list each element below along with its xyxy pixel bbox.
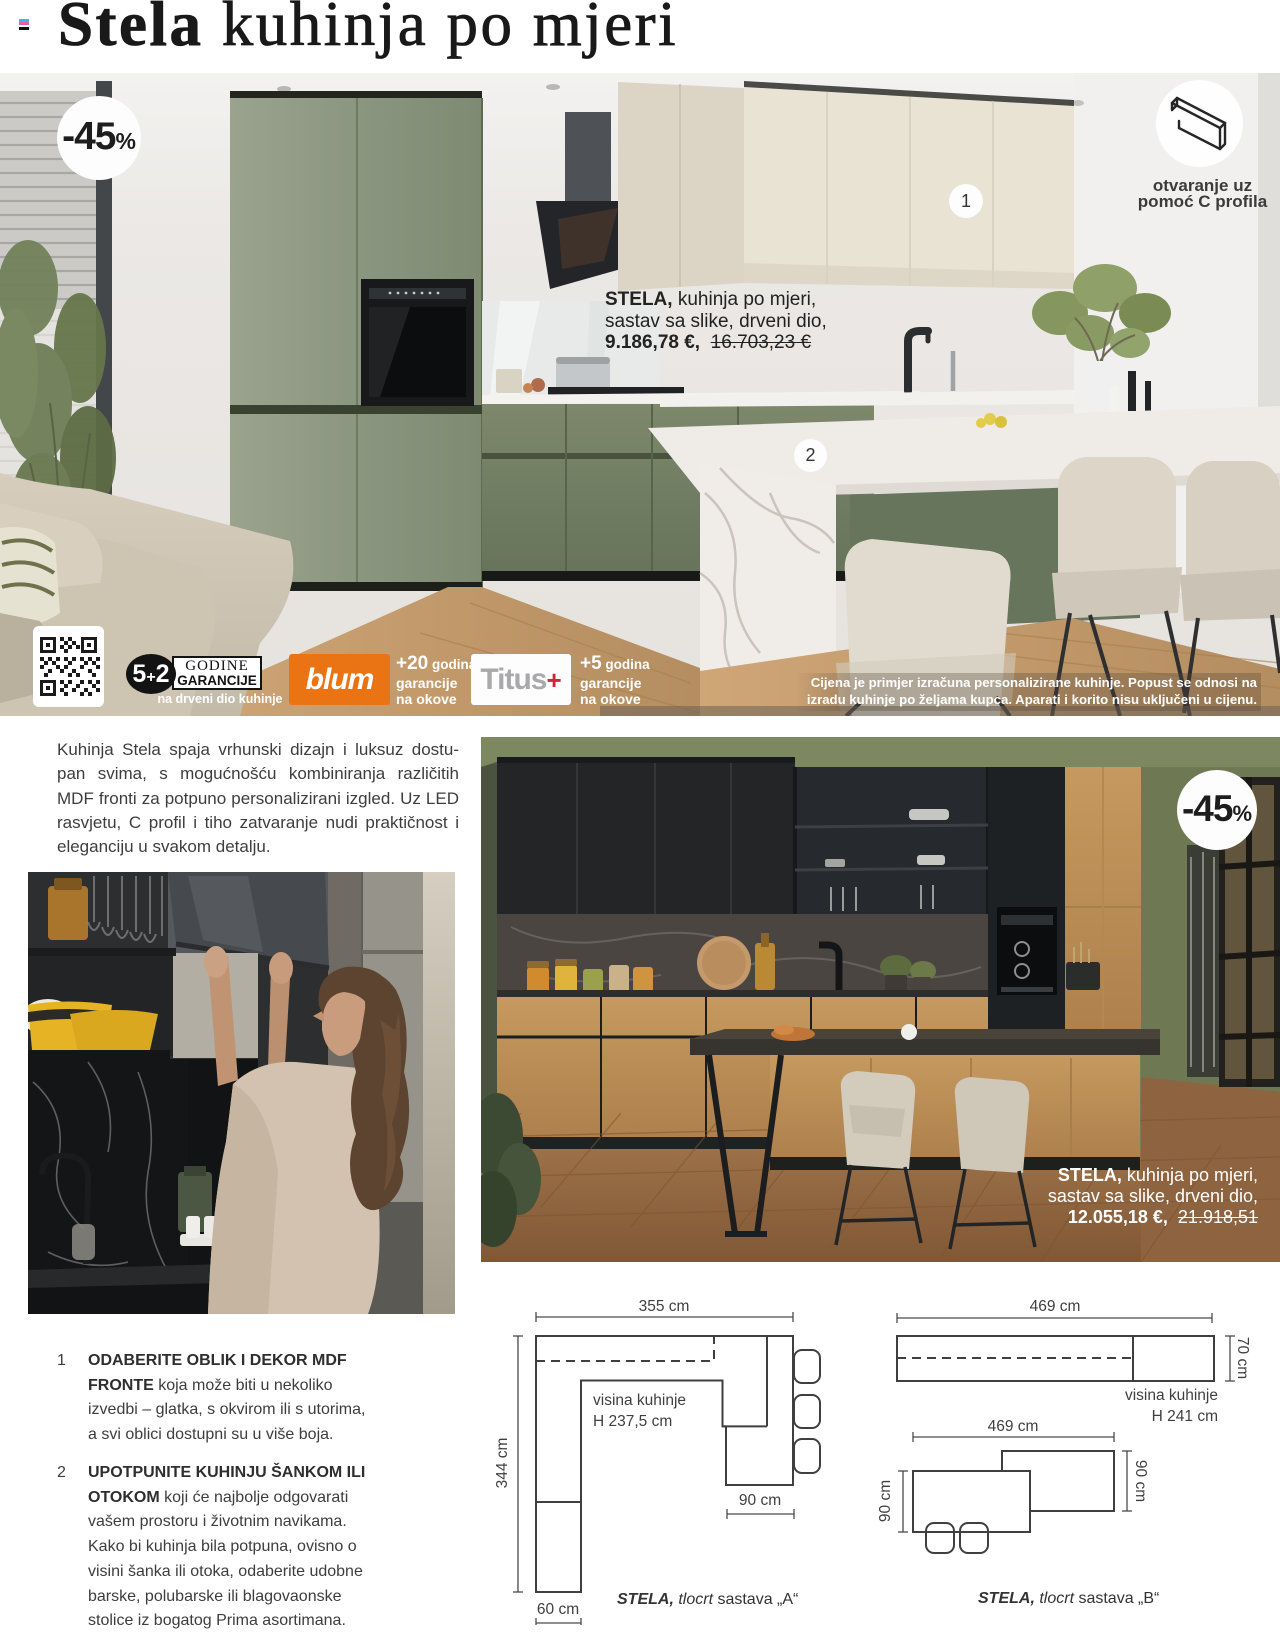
svg-text:90 cm: 90 cm [877, 1480, 894, 1522]
svg-text:60 cm: 60 cm [537, 1601, 579, 1618]
svg-text:STELA, tlocrt sastava „A“: STELA, tlocrt sastava „A“ [617, 1591, 798, 1608]
svg-text:90 cm: 90 cm [739, 1492, 781, 1509]
svg-text:344 cm: 344 cm [494, 1438, 511, 1489]
svg-text:visina kuhinje: visina kuhinje [593, 1392, 686, 1409]
svg-text:355 cm: 355 cm [639, 1298, 690, 1315]
svg-text:H 241 cm: H 241 cm [1152, 1408, 1218, 1425]
svg-text:visina kuhinje: visina kuhinje [1125, 1387, 1218, 1404]
svg-text:469 cm: 469 cm [988, 1418, 1039, 1435]
svg-text:70 cm: 70 cm [1234, 1337, 1251, 1379]
svg-text:90 cm: 90 cm [1132, 1460, 1149, 1502]
svg-text:469 cm: 469 cm [1030, 1298, 1081, 1315]
svg-text:H 237,5 cm: H 237,5 cm [593, 1413, 672, 1430]
svg-text:STELA, tlocrt sastava „B“: STELA, tlocrt sastava „B“ [978, 1590, 1159, 1607]
